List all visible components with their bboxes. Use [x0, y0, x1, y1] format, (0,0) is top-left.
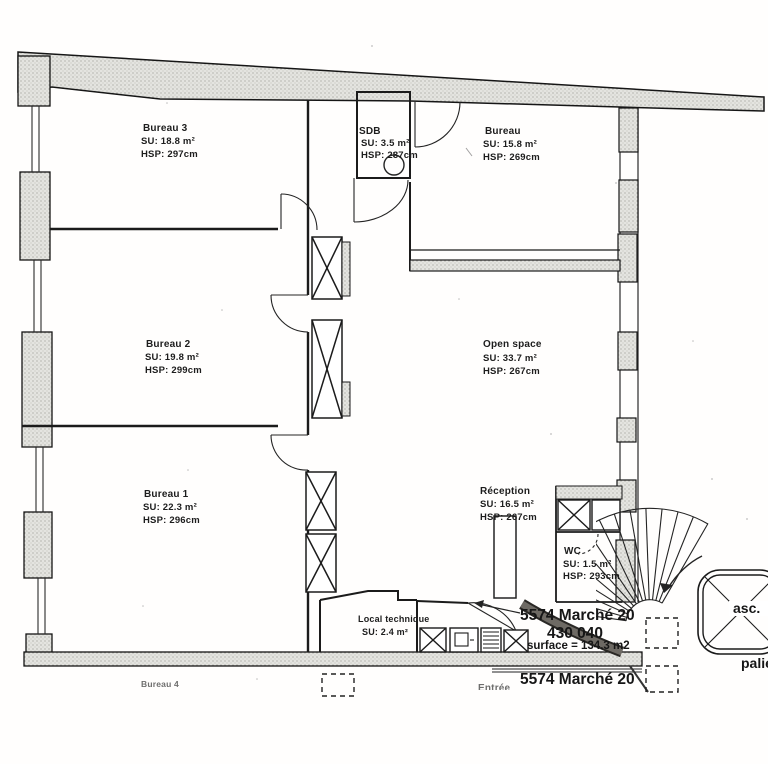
stair-direction-arrow	[660, 556, 702, 593]
room-hsp: HSP: 269cm	[483, 152, 540, 163]
door-bureau-top	[415, 102, 460, 147]
wall-bureau-openspace-hatch	[410, 260, 620, 271]
shaft-symbol	[306, 472, 336, 530]
room-su: SU: 1.5 m²	[563, 559, 611, 570]
elevator-label: asc.	[733, 600, 760, 616]
room-su: SU: 33.7 m²	[483, 353, 537, 364]
lot-title: 5574 Marché 20	[520, 607, 635, 624]
room-label-bureau: Bureau SU: 15.8 m² HSP: 269cm	[483, 126, 540, 163]
shaft-symbol	[306, 534, 336, 592]
room-label-bureau-1: Bureau 1 SU: 22.3 m² HSP: 296cm	[143, 489, 200, 526]
room-name: WC	[564, 546, 581, 557]
shaft-symbol	[504, 630, 528, 652]
room-label-local-technique: Local technique SU: 2.4 m²	[358, 614, 430, 637]
door-bureau2	[271, 295, 308, 332]
shaft-symbol	[312, 237, 350, 299]
shaft-symbol	[420, 628, 446, 652]
room-name: Bureau 1	[144, 489, 189, 500]
door-corridor	[354, 178, 408, 222]
room-hsp: HSP: 237cm	[361, 150, 418, 161]
landing-label: palier	[741, 655, 768, 671]
reception-desk	[494, 516, 516, 598]
room-label-reception: Réception SU: 16.5 m² HSP: 267cm	[480, 486, 537, 523]
room-name: Bureau 3	[143, 123, 188, 134]
room-su: SU: 19.8 m²	[145, 352, 199, 363]
room-su: SU: 15.8 m²	[483, 139, 537, 150]
room-name: Local technique	[358, 614, 430, 624]
floor-plan-page: Bureau 3 SU: 18.8 m² HSP: 297cm SDB SU: …	[0, 0, 768, 764]
appliance-icon	[481, 628, 501, 652]
room-su: SU: 18.8 m²	[141, 136, 195, 147]
room-name: Open space	[483, 339, 542, 350]
room-hsp: HSP: 267cm	[480, 512, 537, 523]
room-label-bureau-4: Bureau 4	[141, 679, 179, 689]
room-label-bureau-3: Bureau 3 SU: 18.8 m² HSP: 297cm	[141, 123, 198, 160]
cabinet	[592, 500, 620, 530]
entrance-label: Entrée	[478, 683, 511, 694]
room-name: Bureau 2	[146, 339, 191, 350]
room-name: Bureau	[485, 126, 521, 137]
lot-title-repeat: 5574 Marché 20	[520, 671, 635, 688]
room-su: SU: 3.5 m²	[361, 138, 409, 149]
wall-top	[18, 52, 764, 111]
wall-bottom	[24, 652, 642, 666]
room-label-wc: WC SU: 1.5 m² HSP: 293cm	[563, 546, 620, 582]
scan-noise	[142, 45, 748, 680]
wc-shafts	[556, 486, 622, 530]
room-label-open-space: Open space SU: 33.7 m² HSP: 267cm	[483, 339, 542, 377]
room-name: Réception	[480, 486, 530, 497]
room-name: SDB	[359, 126, 381, 137]
wall-reception-bottom	[417, 601, 468, 603]
room-hsp: HSP: 297cm	[141, 149, 198, 160]
room-hsp: HSP: 299cm	[145, 365, 202, 376]
door-bureau1	[271, 435, 308, 470]
duct-shafts	[306, 237, 350, 592]
lot-surface: surface = 134.3 m2	[527, 640, 630, 652]
door-bureau3	[281, 194, 317, 230]
shaft-hatch	[556, 486, 622, 499]
room-hsp: HSP: 267cm	[483, 366, 540, 377]
room-su: SU: 2.4 m²	[362, 627, 408, 637]
room-su: SU: 16.5 m²	[480, 499, 534, 510]
floor-plan-drawing: Bureau 3 SU: 18.8 m² HSP: 297cm SDB SU: …	[0, 0, 768, 764]
room-label-bureau-2: Bureau 2 SU: 19.8 m² HSP: 299cm	[145, 339, 202, 376]
wall-left	[18, 56, 52, 664]
kitchenette	[420, 628, 528, 652]
shaft-symbol	[558, 500, 590, 530]
room-hsp: HSP: 296cm	[143, 515, 200, 526]
sink-icon	[450, 628, 478, 652]
shaft-symbol	[312, 320, 350, 418]
room-hsp: HSP: 293cm	[563, 571, 620, 582]
room-su: SU: 22.3 m²	[143, 502, 197, 513]
